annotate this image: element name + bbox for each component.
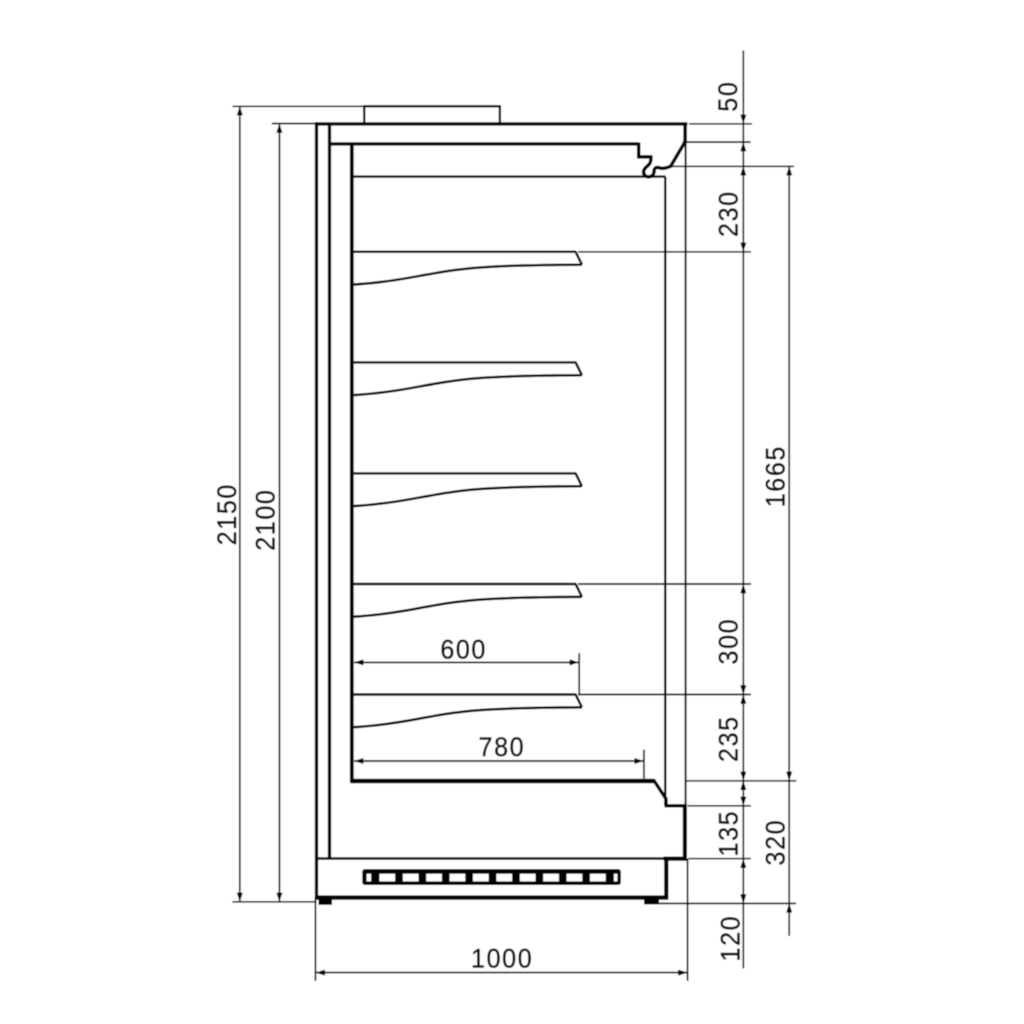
svg-text:600: 600 bbox=[440, 636, 487, 665]
svg-text:235: 235 bbox=[715, 715, 744, 762]
svg-text:300: 300 bbox=[715, 618, 744, 665]
svg-text:1000: 1000 bbox=[471, 945, 533, 974]
svg-text:780: 780 bbox=[479, 734, 526, 763]
svg-text:50: 50 bbox=[714, 81, 743, 112]
svg-text:2100: 2100 bbox=[252, 489, 281, 551]
svg-text:120: 120 bbox=[717, 915, 746, 962]
svg-text:2150: 2150 bbox=[213, 483, 242, 545]
svg-text:320: 320 bbox=[762, 819, 791, 866]
svg-text:230: 230 bbox=[715, 190, 744, 237]
svg-text:1665: 1665 bbox=[762, 445, 791, 507]
svg-text:135: 135 bbox=[715, 810, 744, 857]
